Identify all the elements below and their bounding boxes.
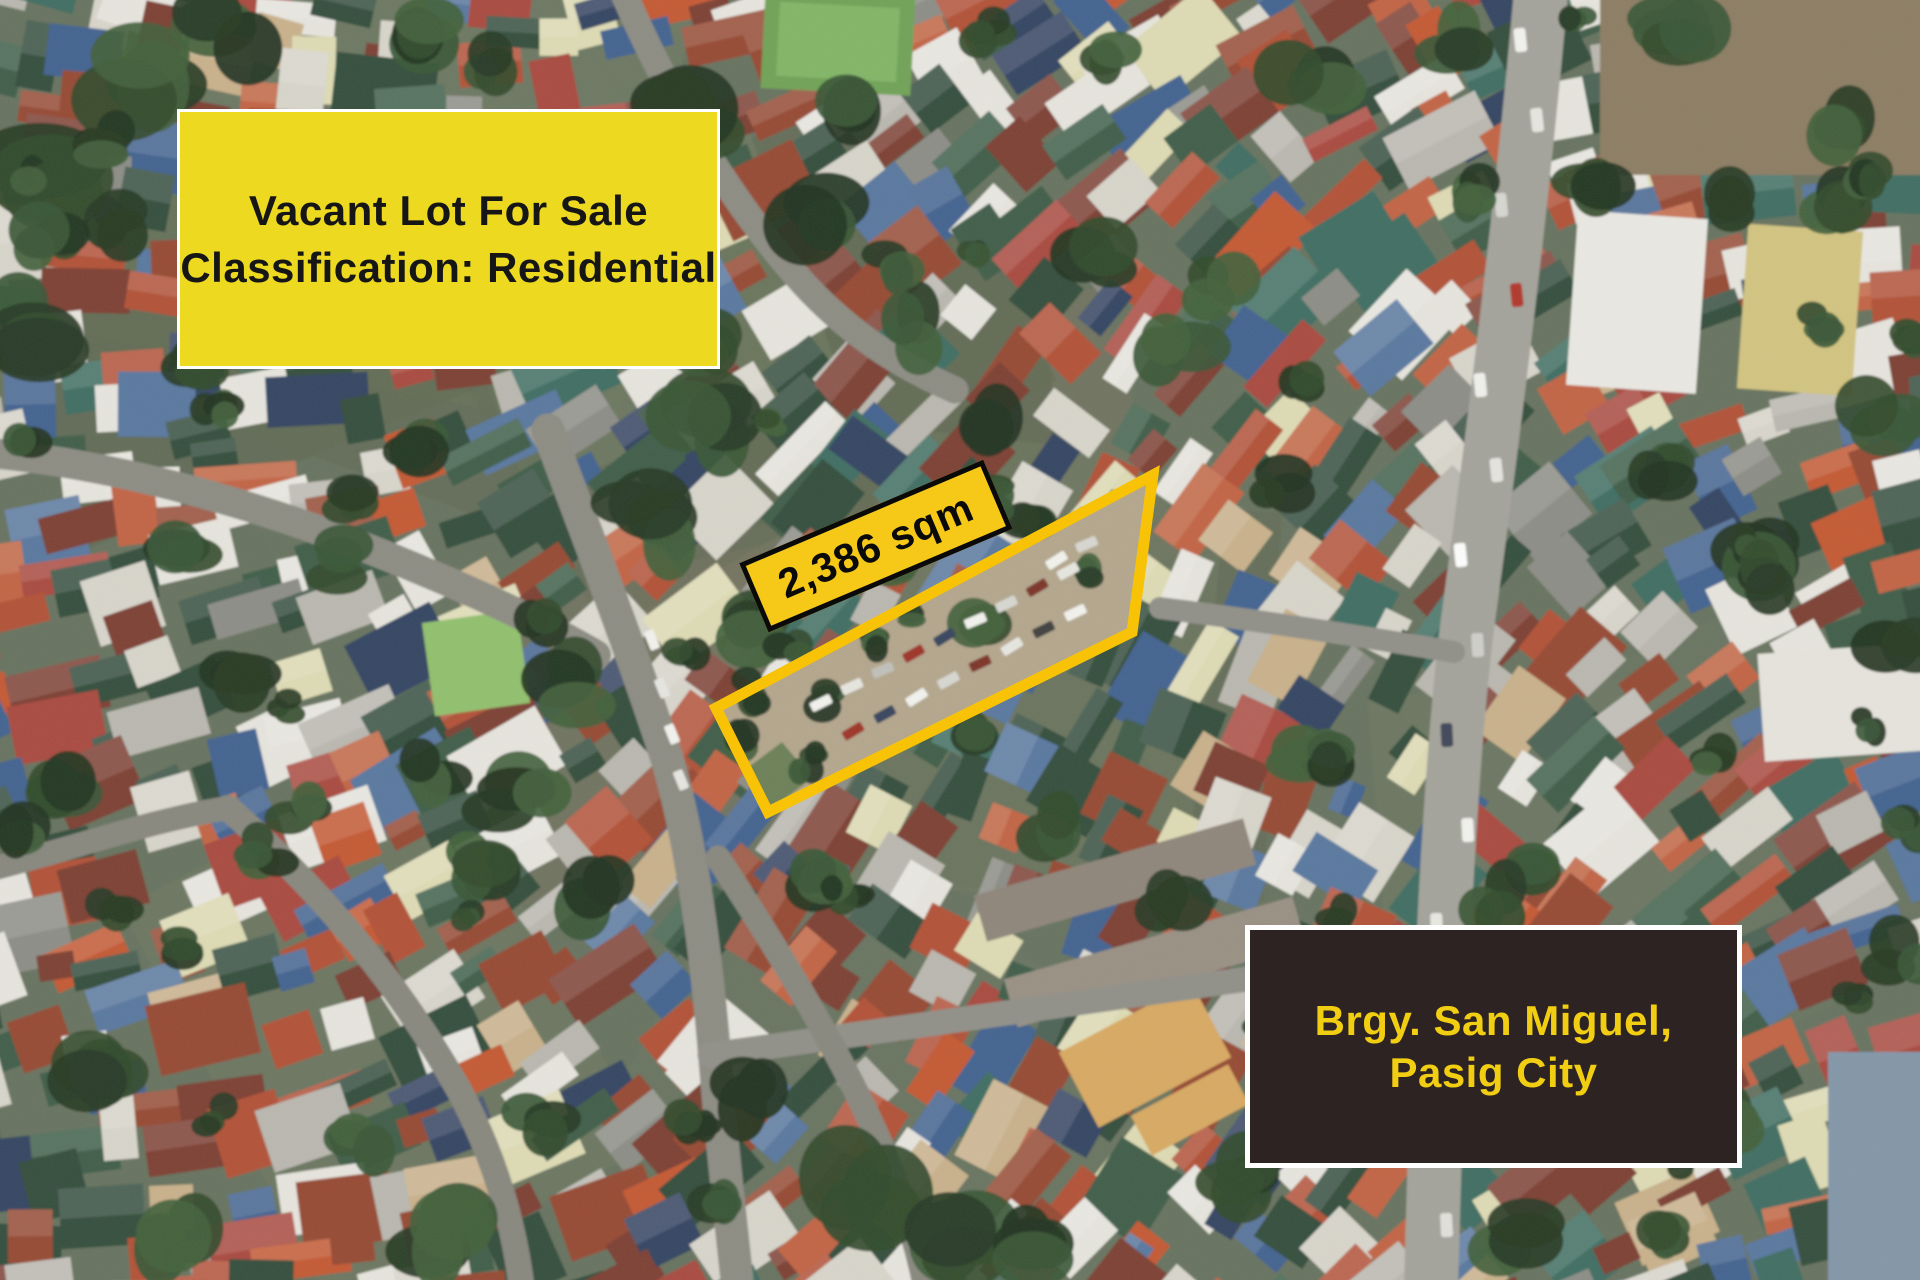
listing-info-box: Vacant Lot For Sale Classification: Resi… xyxy=(177,109,720,369)
location-barangay-line: Brgy. San Miguel, xyxy=(1315,995,1673,1047)
listing-classification-line: Classification: Residential xyxy=(180,239,716,296)
listing-title-line: Vacant Lot For Sale xyxy=(249,182,648,239)
location-city-line: Pasig City xyxy=(1389,1047,1597,1099)
location-box: Brgy. San Miguel, Pasig City xyxy=(1245,925,1742,1168)
satellite-map-view: Vacant Lot For Sale Classification: Resi… xyxy=(0,0,1920,1280)
